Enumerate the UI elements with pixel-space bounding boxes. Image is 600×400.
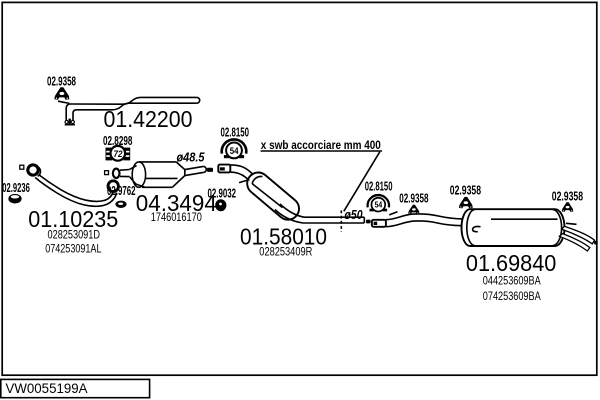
- svg-text:ø48.5: ø48.5: [177, 149, 206, 164]
- svg-text:02.9358: 02.9358: [399, 191, 428, 206]
- svg-text:028253091D: 028253091D: [48, 228, 101, 242]
- svg-text:54: 54: [230, 146, 239, 156]
- svg-text:074253609BA: 074253609BA: [483, 289, 541, 303]
- svg-text:54: 54: [375, 201, 383, 210]
- svg-text:1746016170: 1746016170: [151, 210, 202, 224]
- svg-text:02.9358: 02.9358: [47, 74, 76, 89]
- svg-text:02.9032: 02.9032: [208, 186, 237, 201]
- svg-text:02.9762: 02.9762: [107, 183, 136, 198]
- svg-text:028253409R: 028253409R: [259, 244, 312, 258]
- svg-text:02.9358: 02.9358: [450, 183, 481, 198]
- svg-text:02.9236: 02.9236: [2, 180, 30, 195]
- svg-text:ø50: ø50: [345, 207, 364, 222]
- svg-text:x swb accorciare mm 400: x swb accorciare mm 400: [261, 138, 381, 152]
- svg-text:02.8150: 02.8150: [221, 125, 250, 140]
- svg-text:72: 72: [114, 149, 123, 159]
- svg-text:02.8150: 02.8150: [365, 179, 393, 194]
- svg-text:VW0055199A: VW0055199A: [6, 381, 88, 396]
- svg-text:044253609BA: 044253609BA: [483, 273, 541, 287]
- svg-text:02.9358: 02.9358: [552, 188, 583, 203]
- svg-text:01.69840: 01.69840: [466, 250, 557, 276]
- svg-text:074253091AL: 074253091AL: [45, 242, 102, 256]
- svg-text:01.42200: 01.42200: [104, 106, 193, 132]
